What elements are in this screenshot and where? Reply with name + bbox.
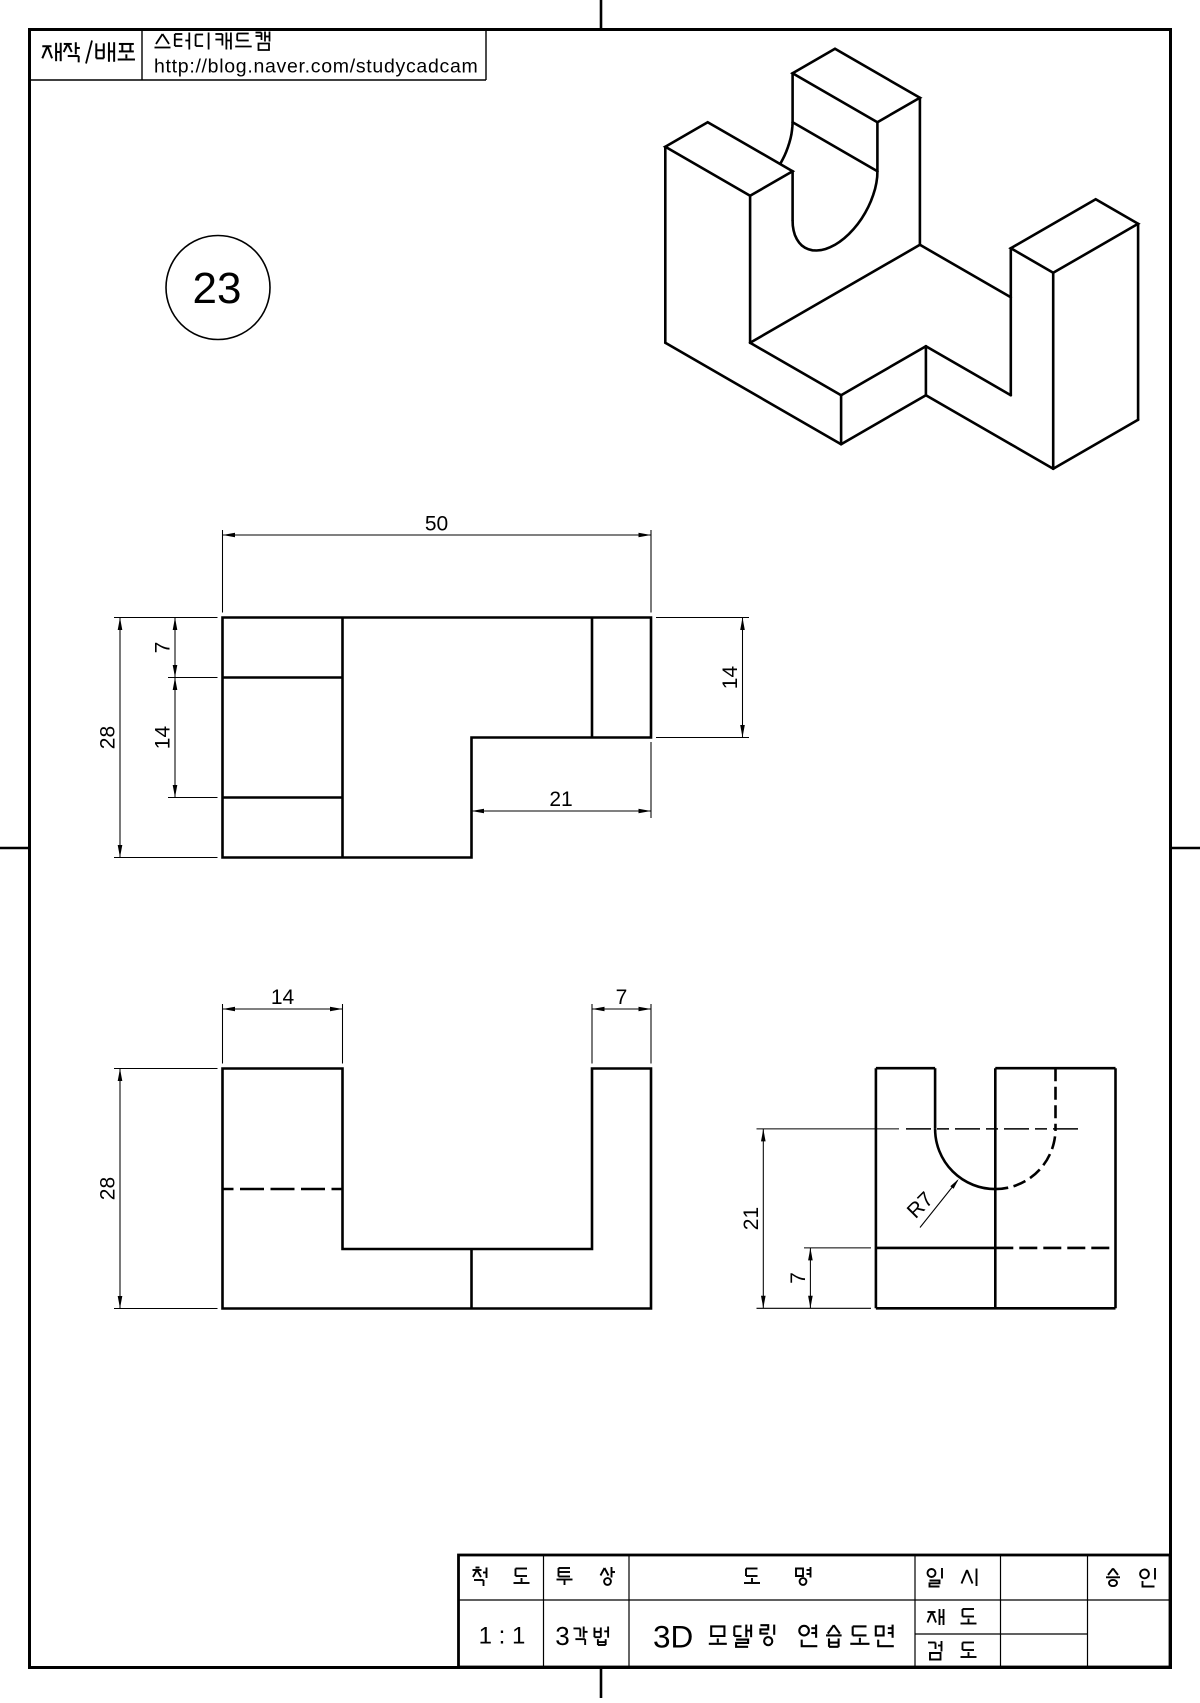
svg-text:23: 23 [193,264,242,313]
svg-text:28: 28 [97,1177,120,1200]
svg-text:14: 14 [271,986,295,1009]
svg-text:http://blog.naver.com/studycad: http://blog.naver.com/studycadcam [154,56,478,78]
svg-text:3: 3 [555,1621,569,1651]
svg-text:3D: 3D [653,1619,693,1655]
svg-text:21: 21 [740,1207,763,1230]
svg-text:21: 21 [549,788,572,811]
svg-text:14: 14 [719,666,742,690]
svg-text:1 : 1: 1 : 1 [479,1623,526,1650]
svg-text:28: 28 [97,726,120,749]
svg-text:14: 14 [152,726,175,750]
svg-text:50: 50 [425,513,448,536]
svg-text:7: 7 [616,986,628,1009]
svg-text:7: 7 [152,642,175,654]
svg-text:7: 7 [787,1272,810,1284]
